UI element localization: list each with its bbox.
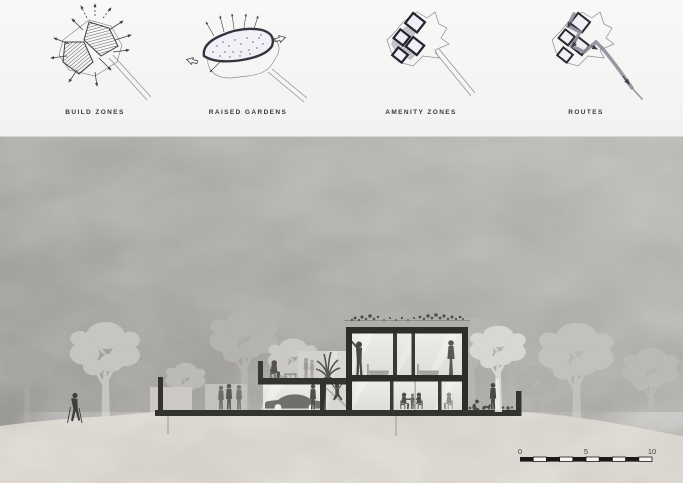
- concept-diagram-strip: BUILD ZONES: [0, 0, 683, 137]
- exterior-wall: [346, 327, 352, 410]
- concept-diagram-raised-gardens: RAISED GARDENS: [173, 2, 323, 116]
- roof-slab: [346, 327, 468, 334]
- roof-parapet: [344, 320, 470, 328]
- raised-garden-platform: [204, 29, 273, 61]
- concept-diagram-amenity-zones: AMENITY ZONES: [346, 2, 496, 116]
- retaining-wall-post: [158, 377, 163, 416]
- floor-slab: [346, 375, 468, 382]
- routes-sketch: [511, 2, 661, 106]
- access-road: [268, 69, 307, 102]
- diagram-label-amenity-zones: AMENITY ZONES: [346, 109, 496, 116]
- foundation-slab: [155, 410, 521, 416]
- partition-wall: [438, 382, 442, 411]
- window-mullion: [412, 334, 416, 376]
- terrace-slab: [258, 378, 348, 385]
- amenity-zones-sketch: [346, 2, 496, 106]
- roof-edge-line: [344, 320, 470, 321]
- exterior-wall: [462, 327, 468, 410]
- terrace-table: [284, 374, 297, 375]
- concept-diagram-routes: ROUTES: [511, 2, 661, 116]
- terrace-parapet: [258, 361, 263, 378]
- building-footprints: [392, 13, 425, 63]
- access-road: [109, 55, 151, 100]
- scale-tick-0: 0: [518, 447, 522, 456]
- build-zones-sketch: [20, 2, 170, 106]
- garden-wall: [150, 387, 192, 412]
- presentation-board: BUILD ZONES: [0, 0, 683, 483]
- diagram-label-raised-gardens: RAISED GARDENS: [173, 109, 323, 116]
- site-section-drawing: 0 5 10: [0, 137, 683, 483]
- end-wall: [516, 391, 522, 416]
- people-group-standing: [218, 384, 242, 410]
- main-block: [344, 313, 470, 410]
- building-footprints: [557, 13, 590, 63]
- raised-gardens-sketch: [173, 2, 323, 106]
- scale-tick-5: 5: [584, 447, 588, 456]
- ground-terrain: [0, 412, 683, 483]
- scale-bar-segments: [520, 457, 652, 462]
- access-road: [435, 49, 475, 96]
- window-mullion: [393, 334, 397, 376]
- concept-diagram-build-zones: BUILD ZONES: [20, 2, 170, 116]
- dashed-arrows: [81, 4, 111, 18]
- diagram-label-routes: ROUTES: [511, 109, 661, 116]
- partition-wall: [390, 382, 394, 411]
- glazing-mullion: [415, 382, 417, 411]
- diagram-label-build-zones: BUILD ZONES: [20, 109, 170, 116]
- scale-tick-10: 10: [648, 447, 656, 456]
